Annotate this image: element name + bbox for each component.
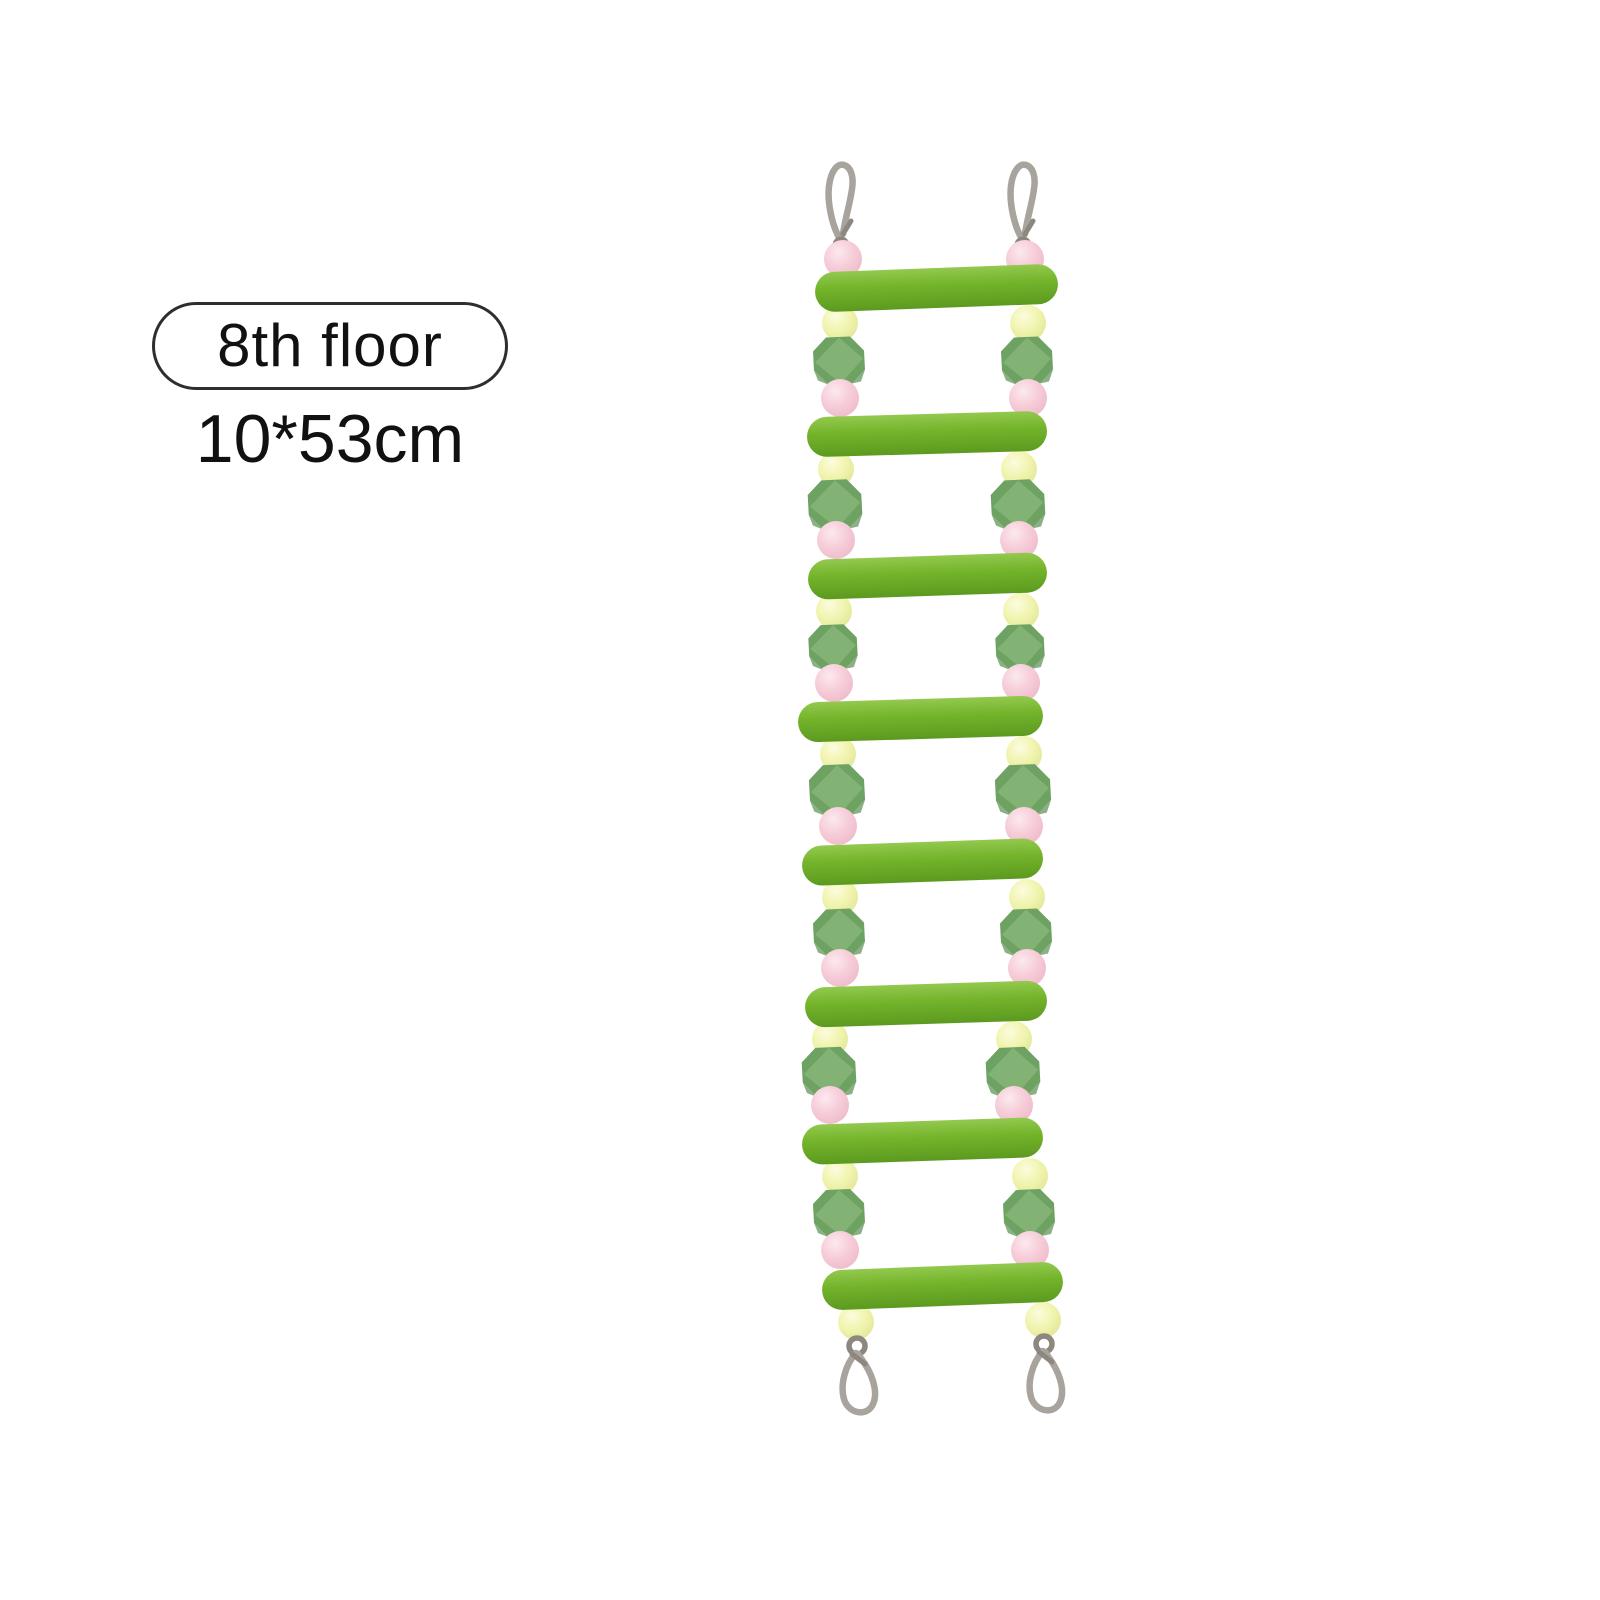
bead-green-faceted bbox=[1001, 337, 1053, 385]
ladder-rung-6 bbox=[804, 980, 1047, 1028]
bead-pink bbox=[811, 1086, 849, 1124]
bead-pink bbox=[817, 521, 855, 559]
ladder-rung-7 bbox=[801, 1117, 1043, 1165]
bottom-left-hook-icon bbox=[843, 1338, 875, 1412]
bead-pink bbox=[821, 949, 859, 987]
bead-green-faceted bbox=[995, 624, 1044, 670]
bead-green-faceted bbox=[1003, 1189, 1055, 1237]
bead-pink bbox=[821, 1231, 859, 1269]
ladder-rung-2 bbox=[806, 411, 1047, 458]
ladder-toy-illustration bbox=[0, 0, 1600, 1600]
bead-pink bbox=[819, 807, 857, 845]
bottom-right-hook-icon bbox=[1030, 1336, 1062, 1410]
bead-green-faceted bbox=[808, 624, 857, 670]
top-right-hook-icon bbox=[1011, 165, 1035, 251]
bottom-bead-yellow bbox=[1025, 1302, 1061, 1338]
product-photo: 8th floor 10*53cm bbox=[0, 0, 1600, 1600]
ladder-rung-8 bbox=[821, 1261, 1063, 1310]
bead-green-faceted bbox=[813, 1189, 865, 1237]
bead-pink bbox=[821, 379, 859, 417]
top-left-hook-icon bbox=[829, 165, 853, 251]
ladder-rung-4 bbox=[797, 695, 1043, 742]
bead-yellow bbox=[1010, 305, 1046, 341]
bead-pink bbox=[815, 664, 853, 702]
bead-yellow bbox=[1012, 1158, 1048, 1194]
bead-green-faceted bbox=[813, 337, 865, 385]
bead-yellow bbox=[1003, 593, 1039, 629]
ladder-rung-5 bbox=[801, 838, 1043, 886]
ladder-rung-3 bbox=[807, 552, 1047, 600]
